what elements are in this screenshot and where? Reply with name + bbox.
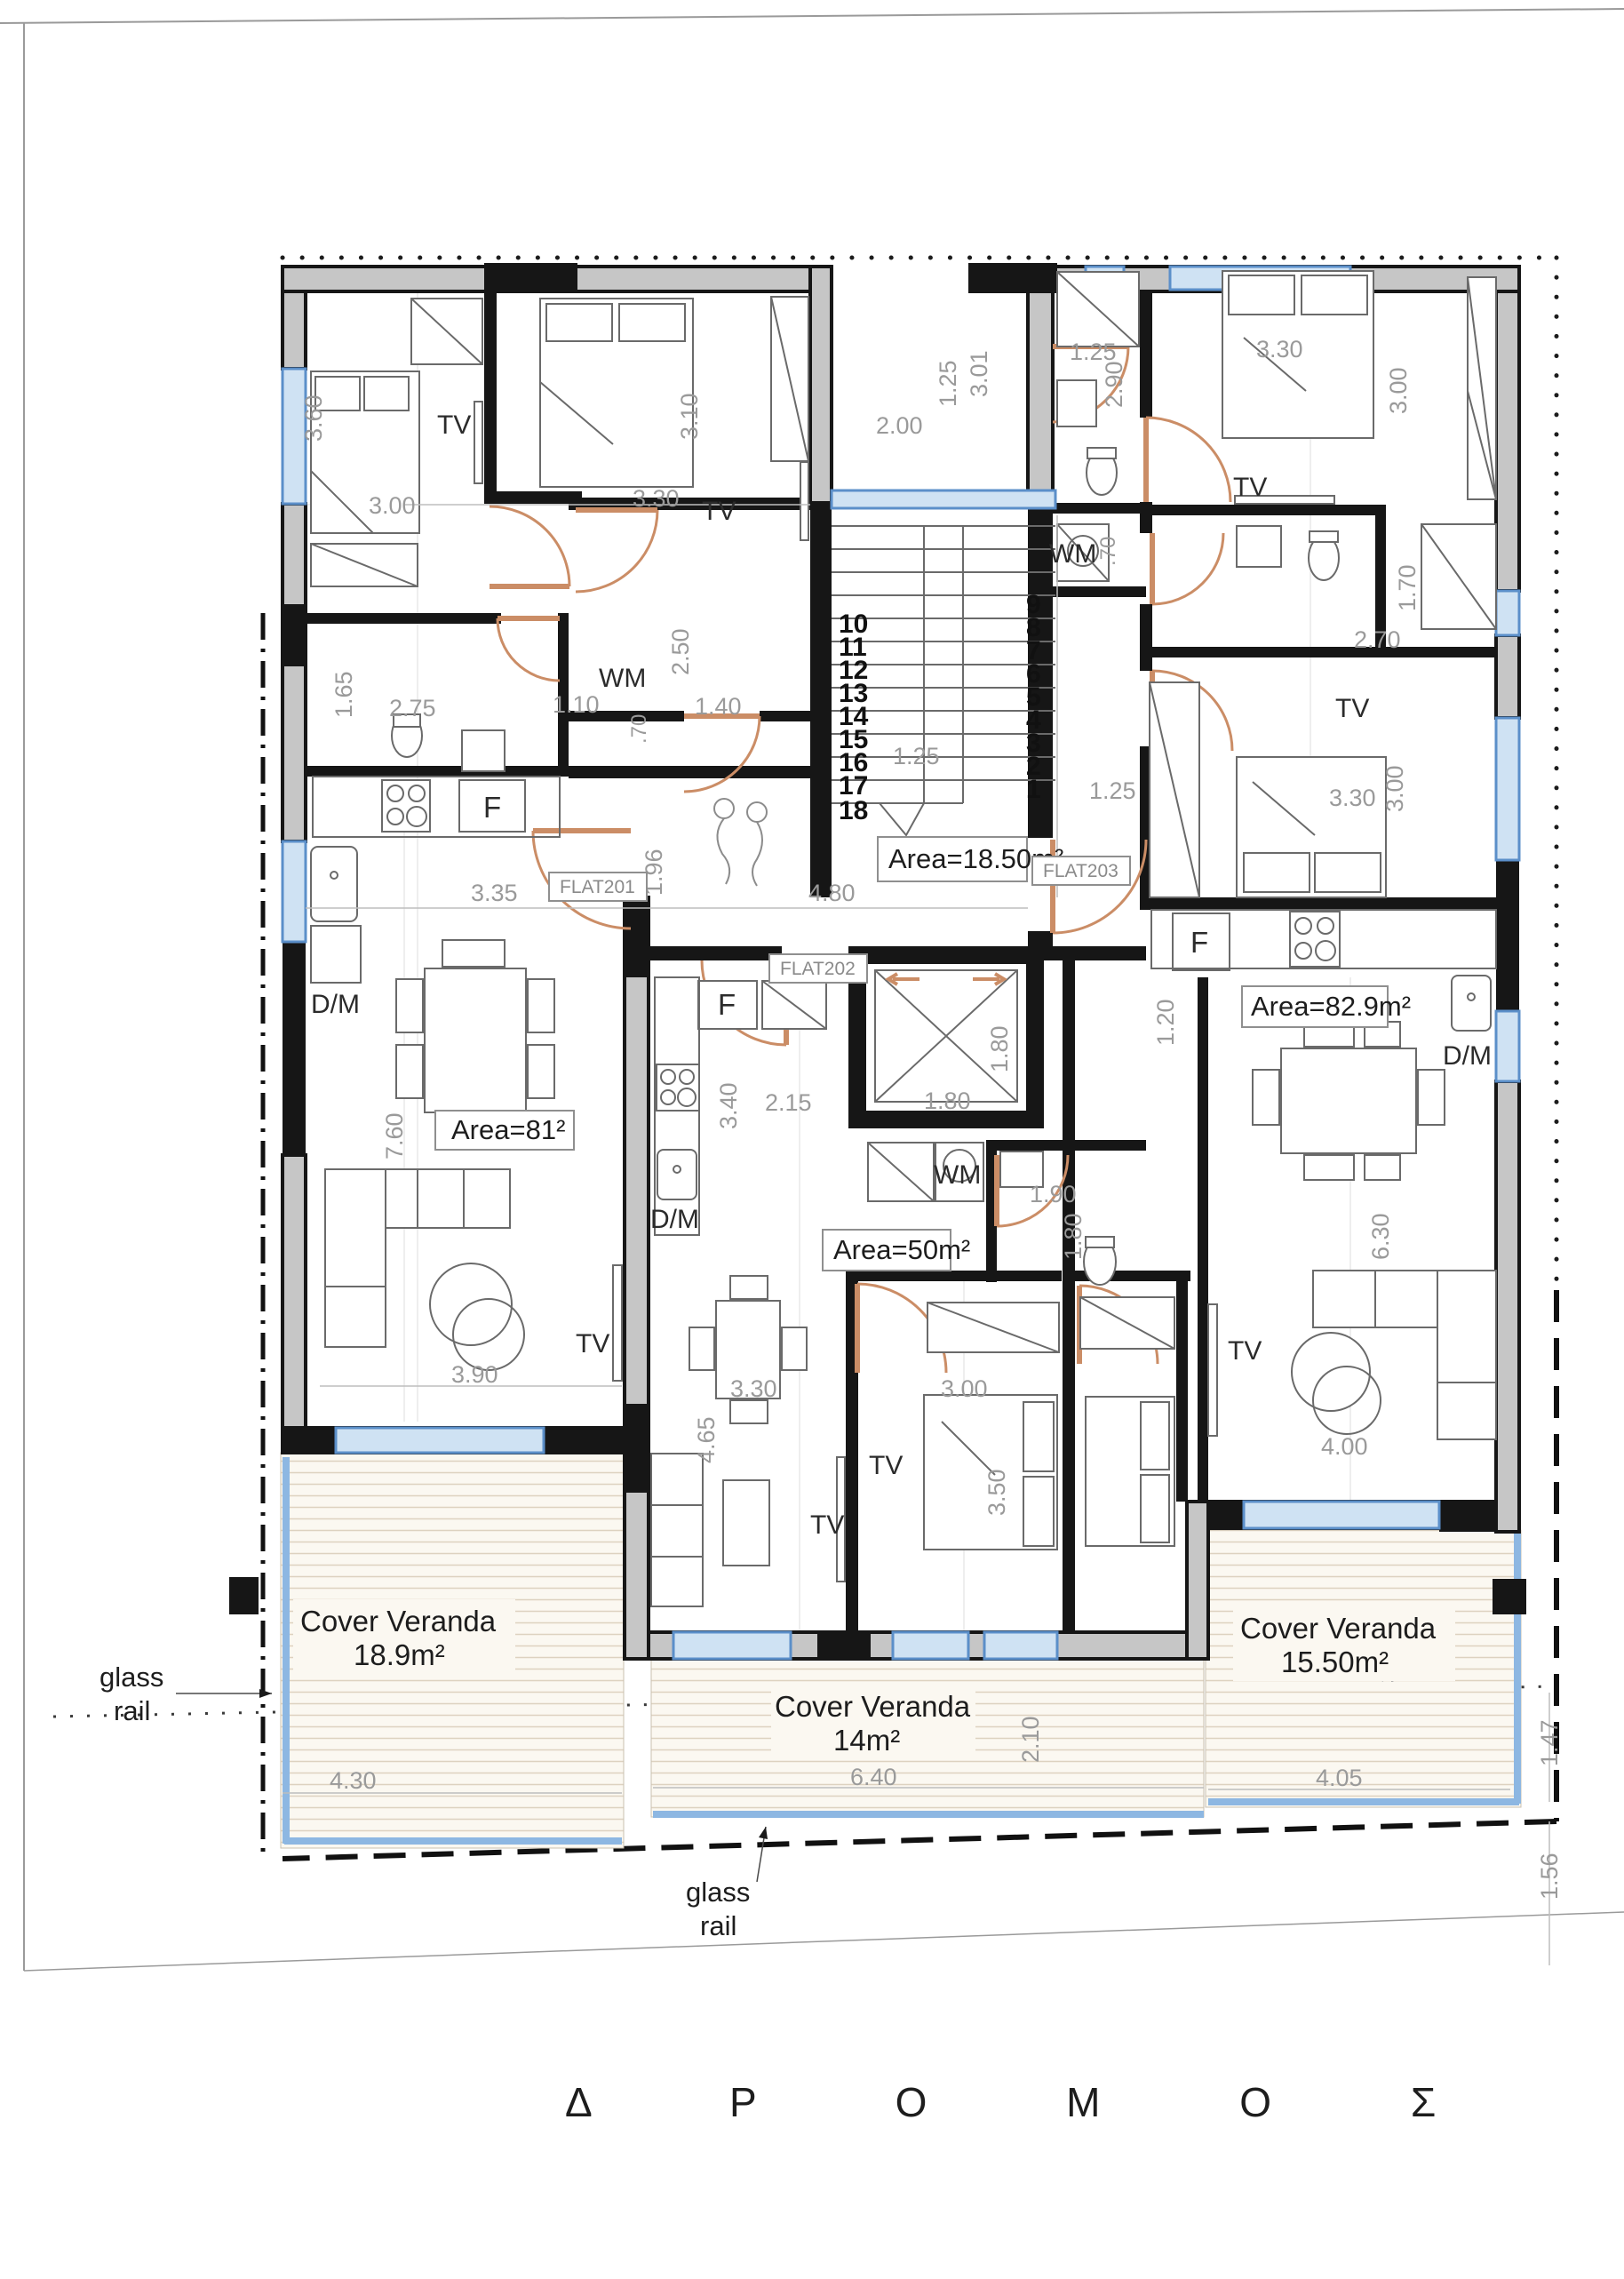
stair-numbers-left: 10 11 12 13 14 15 16 17 18 [839,610,869,825]
svg-text:2.75: 2.75 [389,695,436,721]
area-flat201: Area=81² [451,1114,565,1145]
svg-text:15.50m²: 15.50m² [1281,1646,1389,1678]
svg-text:1.56: 1.56 [1536,1853,1563,1900]
svg-text:3.00: 3.00 [369,492,416,519]
svg-text:3.35: 3.35 [471,880,518,906]
fridge-label: F [1190,926,1208,959]
svg-text:6.30: 6.30 [1367,1213,1394,1260]
window-right-kitchen [1496,1011,1519,1081]
dishwasher-label: D/M [650,1205,699,1234]
window-left-living [336,1428,544,1453]
tv-label: TV [1335,694,1369,723]
svg-text:1.25: 1.25 [1089,777,1136,804]
veranda-column [1493,1579,1526,1614]
flat202-tag: FLAT202 [780,959,856,979]
sink [657,1150,697,1199]
tv-label: TV [1233,473,1267,502]
tv-label: TV [810,1510,844,1540]
wm-label: WM [599,664,646,693]
dishwasher-label: D/M [311,990,360,1019]
flat201-tag: FLAT201 [560,877,635,897]
svg-text:2.15: 2.15 [765,1089,812,1116]
svg-text:2.10: 2.10 [1017,1716,1044,1763]
tv-label: TV [576,1329,609,1359]
svg-text:1: 1 [1026,775,1041,804]
svg-text:3.30: 3.30 [1256,336,1303,363]
svg-text:6.40: 6.40 [850,1764,897,1790]
tv-label: TV [869,1451,903,1480]
hob [657,1064,699,1111]
wm-label: WM [1049,539,1096,569]
tv-unit [474,402,482,483]
tv-label: TV [1228,1336,1262,1366]
svg-text:3.90: 3.90 [451,1361,498,1388]
svg-text:14m²: 14m² [833,1724,900,1757]
window-stairs [832,490,1055,508]
svg-text:4.30: 4.30 [330,1767,377,1794]
svg-text:1.25: 1.25 [893,743,940,769]
road-label: Δ Ρ Ο Μ Ο Σ [565,2079,1500,2125]
sofa [651,1454,703,1606]
window-right-1 [1496,591,1519,635]
svg-text:.70: .70 [627,714,651,744]
svg-text:4.05: 4.05 [1316,1765,1363,1791]
fridge-label: F [718,988,736,1021]
svg-text:1.20: 1.20 [1152,999,1179,1046]
svg-text:1.80: 1.80 [986,1025,1013,1072]
svg-text:1.65: 1.65 [330,671,357,718]
tv-unit [1208,1304,1217,1436]
dishwasher [311,926,361,983]
floor-plan-page: 10 11 12 13 14 15 16 17 18 9 8 7 6 5 4 3… [0,0,1624,2275]
coffee-table [1292,1333,1370,1411]
svg-text:glass: glass [100,1661,163,1693]
sink [1237,526,1281,567]
people-figures [714,799,767,886]
hob [382,780,430,832]
svg-text:4.80: 4.80 [808,880,856,906]
svg-text:2.70: 2.70 [1354,626,1401,653]
svg-text:2.90: 2.90 [1101,361,1127,408]
furniture-left-flat [311,297,808,1381]
svg-text:3.30: 3.30 [1329,785,1376,811]
svg-text:.70: .70 [1096,537,1120,566]
tv-unit [800,462,808,540]
svg-text:1.47: 1.47 [1536,1719,1563,1766]
tv-label: TV [437,410,471,440]
area-flat203: Area=82.9m² [1251,991,1411,1022]
coffee-table [723,1480,769,1566]
svg-text:1.70: 1.70 [1394,564,1421,611]
window-left-kitchen [283,841,306,942]
stair-numbers-right: 9 8 7 6 5 4 3 2 1 [1026,590,1041,804]
floor-plan-drawing: 10 11 12 13 14 15 16 17 18 9 8 7 6 5 4 3… [0,0,1624,2275]
dishwasher-label: D/M [1443,1041,1492,1071]
window-right-2 [1496,718,1519,860]
sink [1452,976,1491,1031]
sink [1057,380,1096,426]
svg-text:3.60: 3.60 [300,394,327,442]
tv-label: TV [702,497,736,526]
svg-text:3.00: 3.00 [941,1375,988,1402]
veranda-column [229,1577,259,1614]
svg-text:3.00: 3.00 [1385,367,1412,414]
svg-text:18: 18 [839,796,868,825]
svg-text:3.30: 3.30 [633,485,680,512]
svg-text:1.10: 1.10 [553,691,600,718]
svg-text:18.9m²: 18.9m² [354,1638,445,1671]
glass-rail-left: glass rail [100,1661,272,1726]
svg-text:Cover Veranda: Cover Veranda [775,1690,971,1723]
svg-text:rail: rail [114,1695,150,1726]
svg-text:1.40: 1.40 [695,693,742,720]
wm-label: WM [934,1160,981,1190]
window-right-living [1244,1502,1439,1528]
flat203-tag: FLAT203 [1043,861,1118,881]
svg-text:rail: rail [700,1910,736,1941]
dining-table [1253,1022,1445,1180]
svg-text:2.00: 2.00 [876,412,923,439]
area-flat202: Area=50m² [833,1234,970,1265]
svg-text:3.30: 3.30 [730,1375,777,1402]
svg-text:1.25: 1.25 [935,360,961,407]
sink [311,847,357,921]
svg-text:Cover Veranda: Cover Veranda [1240,1612,1437,1645]
svg-text:2.50: 2.50 [667,628,694,675]
svg-text:glass: glass [686,1877,750,1908]
svg-text:1.80: 1.80 [1060,1213,1087,1260]
fridge-label: F [483,791,501,824]
svg-text:3.10: 3.10 [676,393,703,440]
svg-text:4.00: 4.00 [1321,1433,1368,1460]
svg-text:3.40: 3.40 [715,1082,742,1129]
svg-text:3.50: 3.50 [983,1469,1010,1516]
svg-text:7.60: 7.60 [381,1112,408,1159]
svg-text:Cover Veranda: Cover Veranda [300,1605,497,1638]
tv-unit [613,1265,622,1381]
staircase: 10 11 12 13 14 15 16 17 18 9 8 7 6 5 4 3… [714,526,1055,886]
svg-text:1.90: 1.90 [1030,1181,1077,1207]
svg-text:3.00: 3.00 [1381,765,1408,812]
window-mid-bed [893,1632,968,1659]
svg-text:1.80: 1.80 [924,1088,971,1114]
svg-text:3.01: 3.01 [966,350,992,397]
hob [1290,912,1340,967]
window-mid-bed2 [984,1632,1057,1659]
svg-text:4.65: 4.65 [693,1416,720,1463]
window-mid-living [673,1632,791,1659]
